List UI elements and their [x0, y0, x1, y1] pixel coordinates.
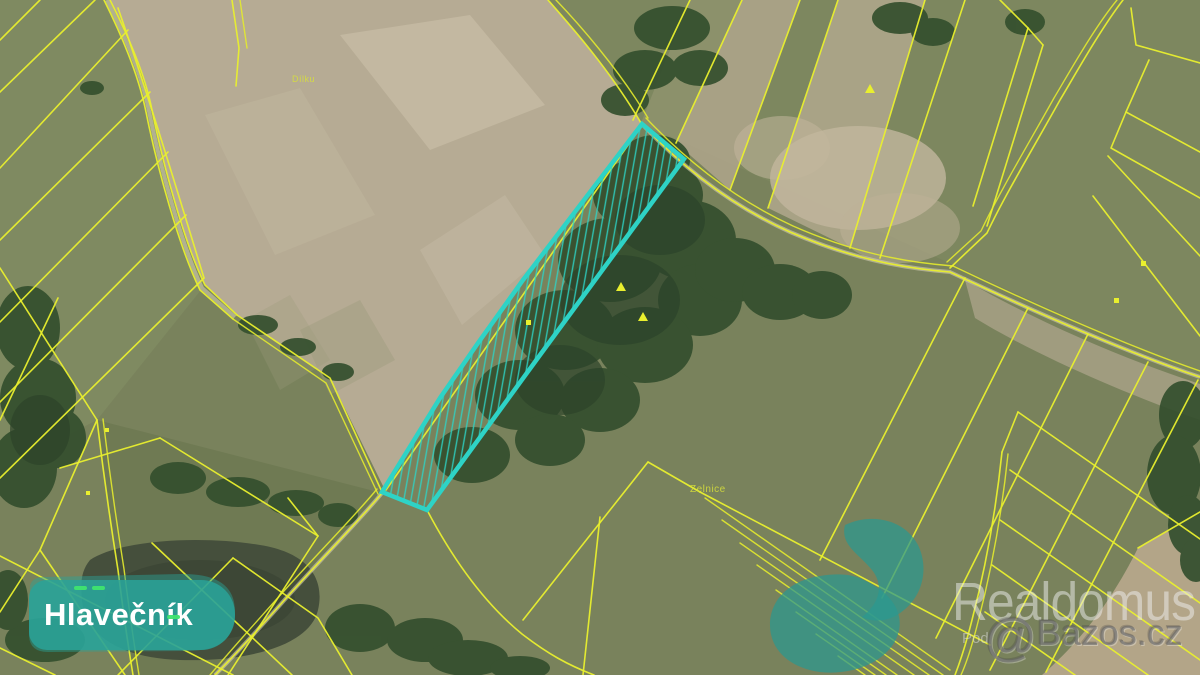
field-label-zelnice: Zelnice	[690, 484, 726, 495]
at-symbol-icon: @	[984, 609, 1037, 667]
bazos-watermark: @Bazos.cz	[984, 612, 1183, 664]
place-badge: Hlavečník	[29, 580, 235, 650]
field-label-dilku: Dílku	[292, 74, 315, 84]
bazos-watermark-text: Bazos.cz	[1037, 612, 1183, 653]
boundary-dash-icon	[92, 586, 105, 590]
boundary-dash-icon	[167, 615, 180, 619]
satellite-map-screenshot: Hlavečník Dílku Zelnice Realdomus Pod @B…	[0, 0, 1200, 675]
boundary-dash-icon	[74, 586, 87, 590]
